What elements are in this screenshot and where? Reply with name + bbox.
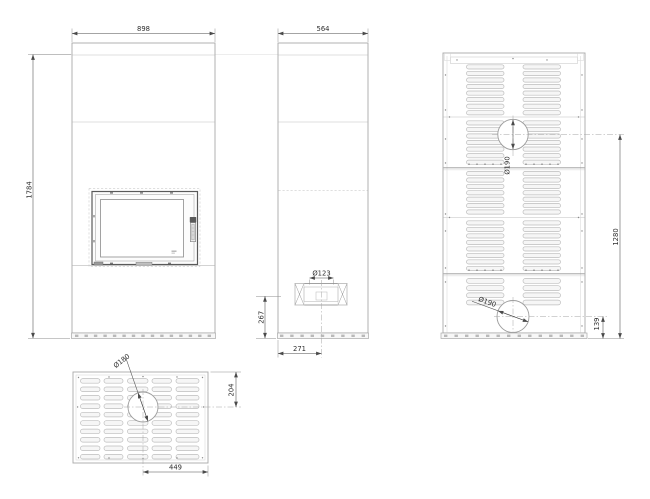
screw-dot [468,163,470,165]
dim-label-rear-bottom-outlet-height: 139 [593,318,601,331]
screw-dot [578,217,579,218]
dim-label-intake-offset: 271 [293,345,306,353]
base-tick [122,335,125,337]
vent-slot [467,234,505,238]
vent-slot [523,184,561,188]
door-screw [140,192,143,193]
rear-body [443,53,585,333]
vent-slot [523,84,561,88]
vent-slot [523,221,561,225]
vent-slot [104,438,123,443]
vent-slot [104,412,123,417]
vent-slot [128,429,149,434]
screw-dot [445,267,446,268]
base-tick [331,335,334,337]
screw-dot [533,163,535,165]
vent-slot [128,379,149,384]
screw-dot [581,325,582,326]
screw-dot [108,457,109,458]
vent-slot [523,111,561,115]
vent-slot [128,454,149,459]
dim-rear-bottom-outlet-height: 139 [593,317,603,339]
screw-dot [445,281,446,282]
vent-slot [81,412,101,417]
screw-dot [546,59,547,60]
screw-dot [581,162,582,163]
vent-slot [176,395,199,400]
screw-dot [541,269,543,271]
vent-slot [523,98,561,102]
vent-slot [467,154,505,158]
vent-slot [467,71,505,75]
base-tick [549,335,552,337]
screw-dot [108,376,109,377]
vent-slot [523,172,561,176]
screw-dot [492,269,494,271]
screw-dot [581,281,582,282]
vent-slot [152,438,172,443]
vent-slot [467,140,505,144]
door-hinge [93,240,94,242]
vent-slot [523,300,561,305]
vent-slot [467,147,505,151]
base-tick [170,335,173,337]
base-tick [497,335,500,337]
vent-slot [176,404,199,409]
screw-dot [176,457,177,458]
dim-label-side-depth: 564 [317,25,330,33]
vent-slot [176,446,199,451]
dim-top-outlet-offset: 449 [143,464,208,477]
base-tick [444,335,447,337]
front-body [72,43,215,333]
screw-dot [445,138,446,139]
vent-slot [467,172,505,176]
side-view [278,43,369,358]
door-screw [168,263,171,264]
vent-slot [467,121,505,125]
screw-dot [476,163,478,165]
vent-slot [467,98,505,102]
vent-slot [523,191,561,195]
vent-slot [152,379,172,384]
door-hinge [93,215,94,217]
vent-slot [523,204,561,208]
base-tick [528,335,531,337]
base-tick [179,335,182,337]
vent-slot [467,91,505,95]
vent-slot [467,191,505,195]
door-screw [170,192,173,193]
base-tick [280,335,283,337]
screw-dot [512,58,513,59]
dim-label-rear-outlet-span: 1280 [612,228,620,245]
vent-slot [104,454,123,459]
vent-slot [81,387,101,392]
dim-rear-outlet-span: 1280 [588,135,624,339]
base-tick [141,335,144,337]
vent-slot [523,147,561,151]
base-tick [455,335,458,337]
base-tick [151,335,154,337]
screw-dot [456,59,457,60]
rear-view [441,53,624,339]
door-glass [101,200,184,258]
screw-dot [549,163,551,165]
dim-intake-height: 267 [256,296,281,338]
screw-dot [202,377,203,378]
vent-slot [467,184,505,188]
base-tick [85,335,88,337]
vent-slot [523,178,561,182]
handle-grip [192,224,195,239]
base-tick [189,335,192,337]
vent-slot [81,429,101,434]
base-tick [362,335,365,337]
vent-slot [523,293,561,298]
side-base-vents [280,335,365,337]
vent-slot [467,78,505,82]
vent-slot [152,446,172,451]
dim-front-width: 898 [72,25,215,42]
vent-slot [467,253,505,257]
screw-dot [476,269,478,271]
vent-slot [81,438,101,443]
fire-door [92,192,198,266]
dim-label-top-outlet-from-edge: 204 [228,384,236,397]
base-tick [103,335,106,337]
dim-label-top-outlet: Ø180 [112,352,131,370]
vent-slot [128,446,149,451]
screw-dot [445,325,446,326]
vent-slot [467,260,505,264]
vent-slot [523,154,561,158]
vent-slot [104,446,123,451]
vent-slot [176,412,199,417]
front-view [72,43,216,339]
vent-slot [81,454,101,459]
door-handle [190,217,196,242]
vent-slot [81,421,101,426]
top-view [73,358,241,478]
vent-slot [523,279,561,284]
vent-slot [467,204,505,208]
vent-slot [523,104,561,108]
screw-dot [581,213,582,214]
base-tick [507,335,510,337]
vent-slot [152,387,172,392]
vent-slot [523,253,561,257]
screw-dot [525,163,527,165]
dim-side-depth: 564 [278,25,368,42]
vent-slot [523,140,561,144]
vent-slot [467,197,505,201]
brand-logo-mark [172,251,177,252]
dim-front-height: 1784 [26,55,71,339]
vent-slot [152,429,172,434]
screw-dot [557,269,559,271]
dim-label-intake-height: 267 [258,311,266,324]
brand-logo-mark [172,253,175,254]
vent-slot [467,279,505,284]
base-tick [198,335,201,337]
screw-dot [77,406,78,407]
vent-slot [81,446,101,451]
vent-slot [523,286,561,291]
base-tick [351,335,354,337]
base-tick [300,335,303,337]
vent-slot [523,127,561,131]
screw-dot [78,457,79,458]
dim-label-front-width: 898 [137,25,150,33]
screw-dot [581,74,582,75]
vent-slot [523,260,561,264]
door-screw [110,263,113,264]
vent-slot [523,240,561,244]
vent-slot [523,121,561,125]
screw-dot [468,269,470,271]
air-control-slider [136,262,152,265]
vent-slot [104,379,123,384]
base-tick [75,335,78,337]
vent-slot [523,210,561,214]
screw-dot [578,116,579,117]
vent-slot [467,104,505,108]
front-base-vents [75,335,211,337]
vent-slot [128,387,149,392]
vent-slot [104,429,123,434]
technical-drawing-page: 898 1784 564 Ø123 267 [0,0,650,499]
dim-rear-top-outlet-diameter: Ø190 [504,156,512,174]
base-tick [208,335,211,337]
vent-slot [467,247,505,251]
screw-dot [557,163,559,165]
screw-dot [484,269,486,271]
dim-label-intake-diameter: Ø123 [312,269,330,277]
base-tick [539,335,542,337]
screw-dot [449,217,450,218]
vent-slot [467,240,505,244]
base-tick [518,335,521,337]
screw-dot [581,267,582,268]
vent-slot [523,71,561,75]
vent-slot [467,221,505,225]
door-screw [110,192,113,193]
vent-slot [523,65,561,69]
base-tick [113,335,116,337]
vent-slot [176,379,199,384]
base-tick [581,335,584,337]
vent-slot [81,404,101,409]
base-tick [560,335,563,337]
vent-slot [176,438,199,443]
screw-dot [142,376,143,377]
dim-top-outlet-from-edge: 204 [211,372,242,407]
base-tick [486,335,489,337]
screw-dot [445,162,446,163]
vent-slot [523,227,561,231]
dim-label-top-outlet-offset: 449 [169,464,182,472]
vent-slot [523,234,561,238]
vent-slot [467,210,505,214]
screw-dot [176,376,177,377]
screw-dot [533,269,535,271]
air-control [94,262,103,265]
vent-slot [176,454,199,459]
screw-dot [581,138,582,139]
vent-slot [104,421,123,426]
screw-dot [484,163,486,165]
dim-label-front-height: 1784 [26,181,34,198]
base-tick [94,335,97,337]
vent-slot [152,454,172,459]
vent-slot [467,84,505,88]
base-tick [132,335,135,337]
base-tick [570,335,573,337]
dim-intake-offset: 271 [278,340,322,358]
vent-slot [176,429,199,434]
screw-dot [445,74,446,75]
screw-dot [202,457,203,458]
screw-dot [581,109,582,110]
screw-dot [549,269,551,271]
screw-dot [449,116,450,117]
base-tick [290,335,293,337]
screw-dot [203,406,204,407]
screw-dot [581,230,582,231]
screw-dot [445,109,446,110]
vent-slot [152,421,172,426]
vent-slot [467,178,505,182]
vent-slot [467,227,505,231]
dim-label-rear-top-outlet: Ø190 [504,156,512,174]
vent-slot [176,421,199,426]
screw-dot [445,213,446,214]
screw-dot [492,163,494,165]
vent-slot [467,286,505,291]
base-tick [160,335,163,337]
vent-slot [104,387,123,392]
screw-dot [445,230,446,231]
vent-slot [523,78,561,82]
screw-dot [500,269,502,271]
fireplace-dimension-drawing: 898 1784 564 Ø123 267 [0,0,650,499]
screw-dot [500,163,502,165]
base-tick [311,335,314,337]
vent-slot [523,197,561,201]
vent-slot [467,65,505,69]
screw-dot [541,163,543,165]
vent-slot [81,379,101,384]
vent-slot [104,395,123,400]
vent-slot [104,404,123,409]
handle-latch [190,217,196,223]
vent-slot [467,111,505,115]
vent-slot [81,395,101,400]
base-tick [465,335,468,337]
vent-slot [523,91,561,95]
rear-base-plinth [441,333,587,339]
vent-slot [523,247,561,251]
dim-top-outlet-diameter: Ø180 [112,352,131,370]
screw-dot [78,377,79,378]
vent-slot [128,438,149,443]
screw-dot [525,269,527,271]
base-tick [476,335,479,337]
base-tick [341,335,344,337]
vent-slot [176,387,199,392]
